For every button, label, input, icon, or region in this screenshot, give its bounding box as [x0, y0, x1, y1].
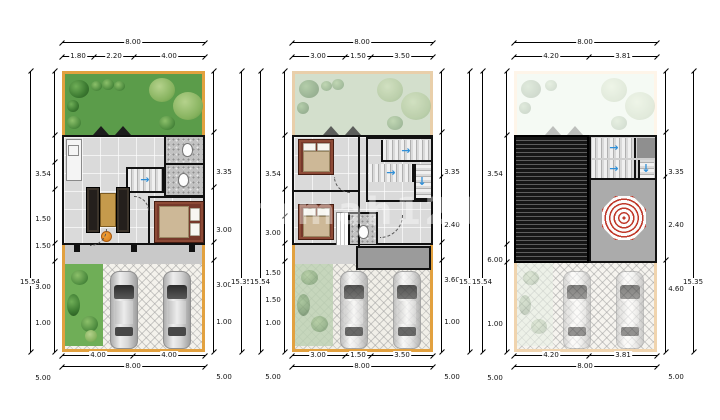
hedge-icon	[321, 81, 332, 91]
dim-label: 3.50	[393, 351, 411, 359]
dim-label: 3.54	[34, 170, 52, 178]
dim-tick	[504, 259, 510, 265]
dim-tick	[282, 68, 288, 74]
floor-plan-sheet: { "watermark": "rumah123", "colors": { "…	[0, 0, 720, 420]
floor-plan-panel-1: 8.00 1.80 2.20 4.00 15.54 3.54 1.50 1.50…	[0, 0, 250, 420]
dim-label: 1.50	[264, 296, 282, 304]
dim-tick	[59, 364, 65, 370]
bed-pillow	[190, 208, 200, 221]
car-rear-window	[568, 327, 586, 336]
dim-tick	[52, 159, 58, 165]
dim-tick	[430, 364, 436, 370]
car-roof	[345, 301, 363, 324]
car-icon	[110, 271, 138, 349]
dim-tick	[202, 364, 208, 370]
dim-tick	[52, 68, 58, 74]
tree-icon	[149, 78, 175, 102]
side-garden	[517, 263, 553, 346]
dim-label: 4.00	[160, 351, 178, 359]
dim-tick	[430, 40, 436, 46]
sofa	[116, 187, 130, 233]
dim-line	[665, 71, 666, 352]
dim-tick	[504, 68, 510, 74]
wall	[164, 137, 166, 197]
car-roof	[621, 301, 639, 324]
dim-tick	[654, 364, 660, 370]
plot-roof-plan: → → ↓	[514, 71, 657, 352]
porch-column	[74, 245, 80, 252]
dim-tick	[511, 54, 517, 60]
dim-label: 1.50	[34, 215, 52, 223]
dim-label: 8.00	[353, 38, 371, 46]
dim-tick	[282, 240, 288, 246]
dim-tick	[91, 54, 97, 60]
car-windshield	[567, 285, 587, 299]
bed	[154, 201, 204, 243]
toilet-icon	[178, 173, 189, 187]
hedge-icon	[102, 79, 114, 90]
dim-tick	[663, 129, 669, 135]
dim-label: 4.00	[89, 351, 107, 359]
dim-label: 4.20	[542, 351, 560, 359]
dim-tick	[59, 54, 65, 60]
driveway	[292, 264, 433, 352]
dim-tick	[52, 186, 58, 192]
dim-tick	[28, 349, 34, 355]
car-rear-window	[345, 327, 363, 336]
dim-tick	[663, 257, 669, 263]
dim-tick	[131, 54, 137, 60]
dim-tick	[258, 68, 264, 74]
metal-roof	[514, 135, 589, 263]
dim-label: 3.00	[309, 52, 327, 60]
bed-pillow	[303, 143, 316, 151]
interior-ground-floor: →	[62, 135, 205, 245]
stair-landing	[637, 138, 655, 158]
bed-pillow	[190, 223, 200, 236]
dim-tick	[342, 353, 348, 359]
dim-label: 1.50	[349, 351, 367, 359]
staircase-block: → → ↓	[589, 135, 657, 180]
driveway	[514, 263, 657, 352]
hedge-icon	[332, 79, 344, 90]
car-windshield	[397, 285, 417, 299]
front-porch	[62, 245, 205, 264]
dim-tick	[258, 349, 264, 355]
dim-tick	[439, 129, 445, 135]
dim-tick	[282, 258, 288, 264]
dim-tick	[211, 257, 217, 263]
car-icon	[563, 271, 591, 349]
dim-label: 3.00	[34, 283, 52, 291]
dim-tick	[289, 54, 295, 60]
dim-label: 8.00	[576, 362, 594, 370]
dim-tick	[480, 68, 486, 74]
entry-door-swing	[323, 126, 339, 135]
dim-tick	[202, 40, 208, 46]
bush-icon	[67, 294, 80, 316]
dim-label: 6.00	[486, 256, 504, 264]
dim-line	[54, 71, 55, 352]
dim-tick	[504, 349, 510, 355]
dim-tick	[663, 68, 669, 74]
dim-label: 1.50	[34, 242, 52, 250]
entry-door-swing	[545, 126, 561, 135]
bush-icon	[67, 100, 79, 112]
car-windshield	[167, 285, 187, 299]
car-roof	[168, 301, 186, 324]
entry-door-swing	[115, 126, 131, 135]
dim-tick	[289, 364, 295, 370]
dim-line	[514, 56, 657, 57]
bush-icon	[311, 316, 328, 332]
bush-icon	[159, 116, 175, 130]
dim-tick	[59, 40, 65, 46]
dim-tick	[239, 349, 245, 355]
wall	[148, 198, 150, 244]
dim-tick	[202, 353, 208, 359]
porch-column	[131, 245, 137, 252]
coffee-table	[100, 193, 116, 227]
bed-mattress	[303, 151, 330, 172]
parasol-umbrella-icon	[602, 196, 646, 240]
dim-tick	[430, 353, 436, 359]
dim-label: 8.00	[353, 362, 371, 370]
dim-tick	[211, 349, 217, 355]
stair-direction-arrow: ↓	[641, 164, 650, 174]
dim-tick	[289, 40, 295, 46]
dim-label: 3.81	[614, 52, 632, 60]
dim-tick	[52, 258, 58, 264]
bed-mattress	[159, 206, 189, 238]
dim-tick	[504, 241, 510, 247]
stair-direction-arrow: →	[140, 175, 149, 185]
wall	[164, 163, 203, 165]
car-rear-window	[115, 327, 133, 336]
dim-tick	[511, 364, 517, 370]
dim-label: 4.00	[160, 52, 178, 60]
dim-label: 1.00	[486, 320, 504, 328]
bush-icon	[67, 116, 81, 129]
hedge-icon	[545, 80, 557, 91]
tree-icon	[401, 92, 431, 120]
bed-pillow	[317, 143, 330, 151]
bush-icon	[521, 80, 541, 98]
dim-tick	[211, 68, 217, 74]
bush-icon	[69, 80, 89, 98]
stair-direction-arrow: →	[609, 164, 618, 174]
dim-label: 5.00	[215, 373, 233, 381]
dim-label: 2.40	[667, 221, 685, 229]
dim-label: 1.80	[69, 52, 87, 60]
dim-label: 1.00	[264, 319, 282, 327]
dim-label: 15.54	[249, 278, 271, 286]
car-rear-window	[168, 327, 186, 336]
dim-label: 8.00	[124, 362, 142, 370]
tree-icon	[625, 92, 655, 120]
dim-label: 3.35	[215, 168, 233, 176]
front-garden	[62, 71, 205, 135]
dim-label: 3.35	[667, 168, 685, 176]
car-windshield	[344, 285, 364, 299]
car-rear-window	[398, 327, 416, 336]
bush-icon	[297, 294, 310, 316]
car-rear-window	[621, 327, 639, 336]
bush-icon	[519, 295, 531, 315]
dim-label: 3.54	[264, 170, 282, 178]
car-windshield	[620, 285, 640, 299]
dim-tick	[59, 353, 65, 359]
dim-label: 3.54	[486, 170, 504, 178]
tree-icon	[601, 78, 627, 102]
dim-line	[514, 355, 657, 356]
dim-tick	[439, 257, 445, 263]
dim-tick	[430, 54, 436, 60]
bush-icon	[297, 102, 309, 114]
door-swing-arc	[134, 196, 149, 211]
dim-label: 3.81	[614, 351, 632, 359]
bush-icon	[299, 80, 319, 98]
dim-tick	[211, 239, 217, 245]
car-roof	[115, 301, 133, 324]
bush-icon	[531, 319, 547, 334]
wall	[148, 196, 203, 198]
dim-tick	[368, 353, 374, 359]
bush-icon	[71, 270, 88, 285]
dim-label: 3.35	[443, 168, 461, 176]
hedge-icon	[114, 81, 125, 91]
door-swing-arc	[90, 229, 107, 246]
watermark: rumah123	[246, 190, 482, 233]
entry-door-swing	[567, 126, 583, 135]
entry-door-swing	[93, 126, 109, 135]
car-icon	[163, 271, 191, 349]
dim-tick	[342, 54, 348, 60]
dim-tick	[368, 54, 374, 60]
dim-label: 4.60	[667, 285, 685, 293]
dim-label: 3.00	[309, 351, 327, 359]
dim-tick	[211, 129, 217, 135]
tree-icon	[173, 92, 203, 120]
bush-icon	[85, 330, 97, 342]
dim-tick	[586, 54, 592, 60]
dim-tick	[439, 239, 445, 245]
dim-tick	[691, 349, 697, 355]
dim-label: 5.00	[264, 373, 282, 381]
car-windshield	[114, 285, 134, 299]
dim-tick	[654, 353, 660, 359]
side-garden	[65, 264, 103, 346]
car-roof	[398, 301, 416, 324]
car-icon	[393, 271, 421, 349]
dim-tick	[282, 349, 288, 355]
hedge-icon	[91, 81, 102, 91]
kitchen-sink	[68, 145, 79, 156]
dim-line	[482, 71, 483, 352]
dim-tick	[511, 353, 517, 359]
dim-tick	[654, 54, 660, 60]
dim-label: 1.50	[349, 52, 367, 60]
dim-label: 3.50	[393, 52, 411, 60]
garden-below	[292, 71, 433, 135]
bush-icon	[523, 271, 539, 285]
dim-tick	[239, 68, 245, 74]
garden-below	[514, 71, 657, 135]
bed	[298, 139, 334, 175]
car-roof	[568, 301, 586, 324]
dim-label: 15.54	[471, 278, 493, 286]
dim-line	[213, 71, 214, 352]
dim-line	[693, 71, 694, 352]
plot-ground-floor: →	[62, 71, 205, 352]
dim-tick	[663, 349, 669, 355]
dim-label: 1.00	[34, 319, 52, 327]
bush-icon	[387, 116, 403, 130]
dim-tick	[504, 132, 510, 138]
dim-line	[241, 71, 242, 352]
bush-icon	[519, 102, 531, 114]
dim-tick	[130, 353, 136, 359]
dim-tick	[28, 68, 34, 74]
dim-line	[62, 355, 205, 356]
dim-tick	[52, 132, 58, 138]
stair-direction-arrow: →	[401, 146, 410, 156]
dim-label: 8.00	[576, 38, 594, 46]
dim-label: 1.50	[264, 269, 282, 277]
rooftop-terrace	[589, 180, 657, 263]
entry-canopy-roof	[356, 246, 431, 270]
sofa	[86, 187, 100, 233]
dim-label: 5.00	[486, 374, 504, 382]
dim-tick	[511, 40, 517, 46]
dim-line	[30, 71, 31, 352]
dim-tick	[282, 132, 288, 138]
dim-tick	[439, 68, 445, 74]
dim-label: 4.20	[542, 52, 560, 60]
tree-icon	[377, 78, 403, 102]
driveway	[62, 264, 205, 352]
entry-door-swing	[345, 126, 361, 135]
stair-direction-arrow: →	[609, 143, 618, 153]
dim-label: 5.00	[34, 374, 52, 382]
side-garden	[295, 264, 333, 346]
dim-tick	[691, 68, 697, 74]
dim-label: 2.20	[105, 52, 123, 60]
toilet-icon	[182, 143, 193, 157]
porch-column	[189, 245, 195, 252]
dim-label: 8.00	[124, 38, 142, 46]
dim-label: 15.35	[682, 278, 704, 286]
dim-tick	[654, 40, 660, 46]
dim-label: 5.00	[667, 373, 685, 381]
dim-line	[506, 71, 507, 352]
car-icon	[616, 271, 644, 349]
dim-tick	[211, 184, 217, 190]
car-icon	[340, 271, 368, 349]
dim-tick	[586, 353, 592, 359]
dim-tick	[52, 349, 58, 355]
dim-label: 1.00	[443, 318, 461, 326]
dim-tick	[202, 54, 208, 60]
dim-label: 3.00	[215, 226, 233, 234]
dim-label: 5.00	[443, 373, 461, 381]
floor-plan-panel-3: 8.00 4.20 3.81 15.54 3.54 6.00 1.00 5.00…	[472, 0, 720, 420]
dim-label: 1.00	[215, 318, 233, 326]
bush-icon	[301, 270, 318, 285]
dim-tick	[439, 349, 445, 355]
stair-direction-arrow: →	[386, 168, 395, 178]
stair-direction-arrow: ↓	[417, 177, 426, 187]
dim-tick	[52, 240, 58, 246]
dim-tick	[480, 349, 486, 355]
dim-tick	[289, 353, 295, 359]
bush-icon	[611, 116, 627, 130]
